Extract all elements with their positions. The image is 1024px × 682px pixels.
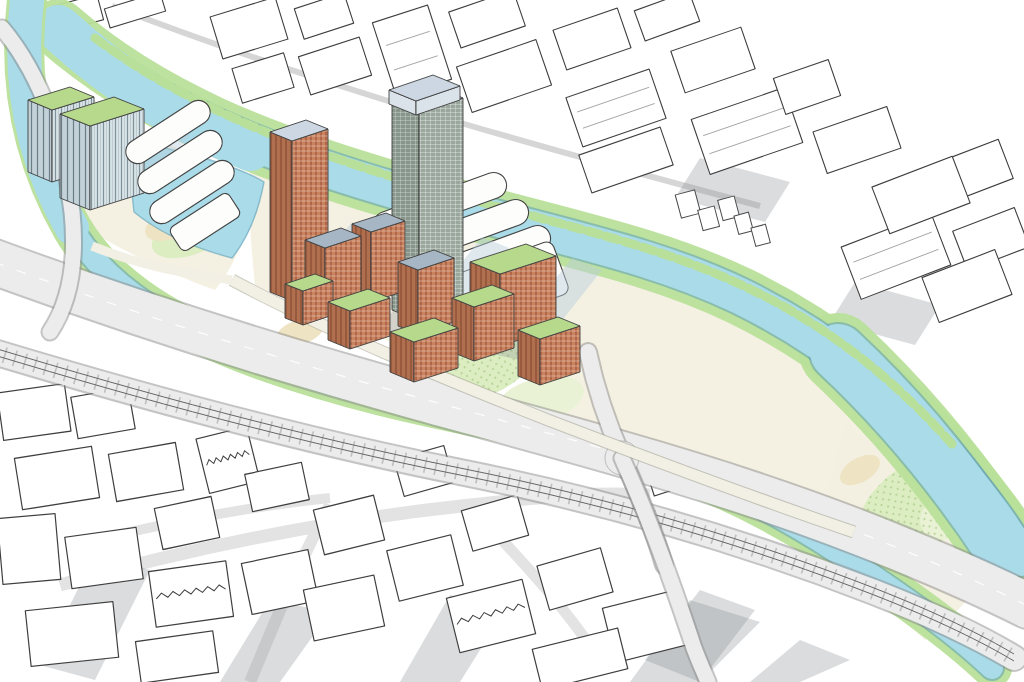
masterplan-illustration: [0, 0, 1024, 682]
context-building: [449, 0, 526, 48]
context-building: [25, 602, 118, 667]
context-building: [0, 514, 61, 585]
context-building: [210, 0, 288, 59]
context-building: [773, 60, 840, 115]
context-building: [14, 446, 99, 510]
context-building: [634, 0, 699, 41]
context-building: [553, 8, 631, 70]
context-building: [446, 579, 535, 652]
midrise-block: [518, 317, 580, 385]
context-building: [65, 527, 144, 589]
midrise-terrace: [285, 274, 333, 325]
context-building: [537, 548, 613, 610]
context-building: [298, 37, 371, 95]
context-building: [148, 561, 233, 627]
context-building: [813, 107, 901, 174]
context-building: [456, 40, 551, 113]
context-building: [0, 384, 71, 441]
context-building: [232, 53, 294, 103]
context-building: [108, 442, 183, 501]
context-building: [872, 156, 970, 233]
midrise-block: [452, 285, 514, 361]
context-building: [135, 631, 218, 682]
context-building: [294, 0, 353, 39]
context-building: [387, 535, 464, 601]
context-building: [671, 27, 755, 93]
